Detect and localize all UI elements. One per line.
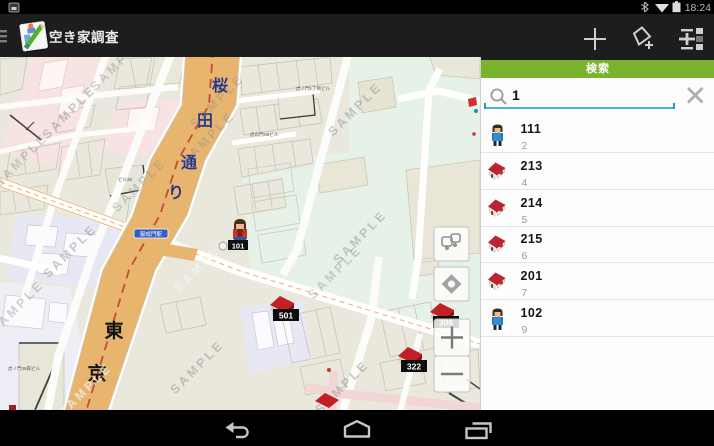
svg-text:り: り xyxy=(168,184,184,202)
svg-text:御成門駅: 御成門駅 xyxy=(140,230,163,238)
svg-text:322: 322 xyxy=(407,362,421,372)
svg-text:虎の門N5ビル: 虎の門N5ビル xyxy=(250,131,279,138)
svg-text:101: 101 xyxy=(232,242,245,251)
svg-text:空き家調査: 空き家調査 xyxy=(49,29,119,45)
svg-text:18:24: 18:24 xyxy=(685,2,711,14)
svg-text:東: 東 xyxy=(104,319,123,342)
svg-text:虎ノ門1丁目ビル: 虎ノ門1丁目ビル xyxy=(296,85,331,92)
svg-text:虎ノ門36森ビル: 虎ノ門36森ビル xyxy=(8,365,41,372)
svg-text:501: 501 xyxy=(279,311,293,321)
svg-text:ビル35: ビル35 xyxy=(118,176,133,182)
